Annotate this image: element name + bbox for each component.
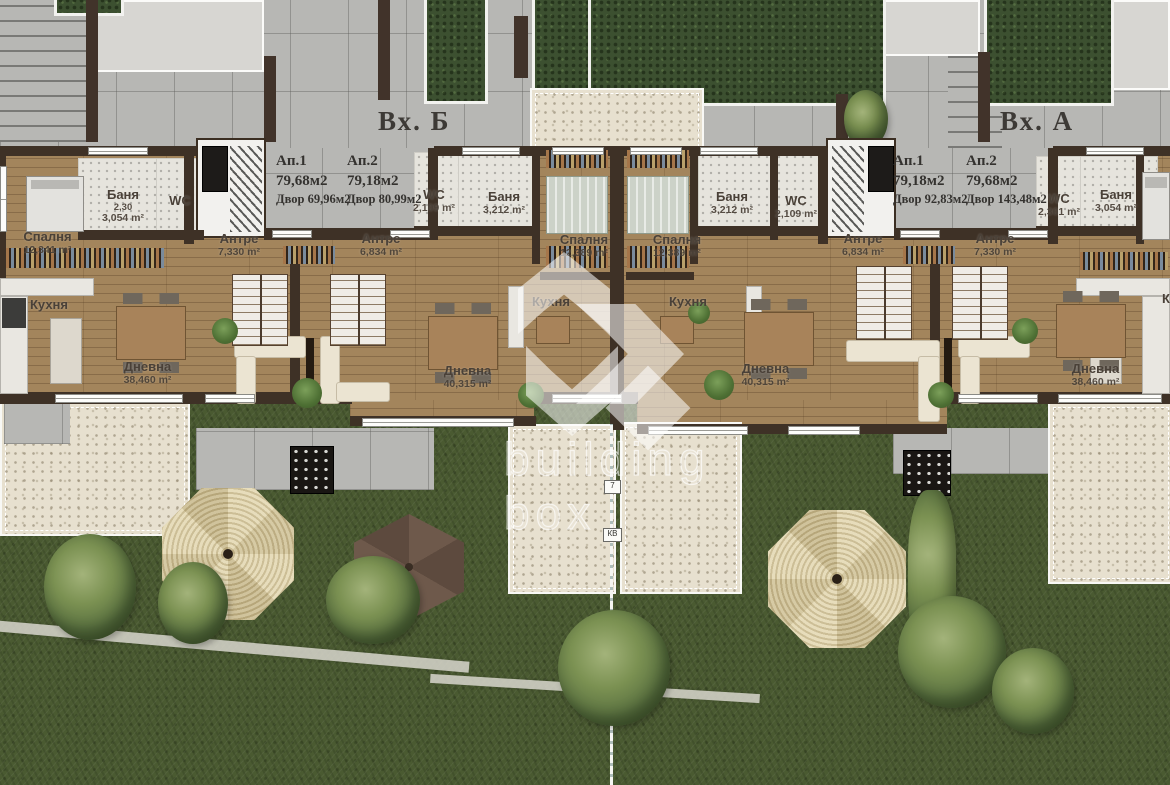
apartment-info-b1: Ап.1 79,68м2 Двор 69,96м2 xyxy=(276,152,350,207)
room-label-bedroom: Спалня12,389 m² xyxy=(638,233,716,259)
dining-table xyxy=(744,312,814,366)
room-label-bath: Баня3,054 m² xyxy=(1082,188,1150,214)
internal-staircase xyxy=(952,266,1008,340)
room-label-kitchen: Кухня xyxy=(1146,292,1170,307)
room-label-living: Дневна38,460 m² xyxy=(100,360,195,386)
gazebo xyxy=(768,510,906,648)
room-label-living: Дневна38,460 m² xyxy=(1048,362,1143,388)
window xyxy=(0,166,7,232)
entrance-b-label: Вх. Б xyxy=(378,106,451,137)
room-label-hall: Антре7,330 m² xyxy=(196,232,282,258)
plant xyxy=(518,382,544,408)
window xyxy=(958,394,1038,403)
terrace-tile-patch xyxy=(4,404,70,444)
exterior-stairs-left xyxy=(0,0,88,142)
bed xyxy=(546,176,608,234)
window xyxy=(1086,147,1144,155)
plant xyxy=(928,382,954,408)
stairwell-entrance-b xyxy=(196,138,266,238)
stairwell-entrance-a xyxy=(826,138,896,238)
hedge-planter-1 xyxy=(424,0,488,104)
room-label-wc: WC xyxy=(158,194,202,209)
tree xyxy=(898,596,1006,708)
bed xyxy=(627,176,689,234)
wall-column xyxy=(264,56,276,142)
plant xyxy=(212,318,238,344)
dining-table xyxy=(1056,304,1126,358)
terrace-gravel-center-left xyxy=(508,424,616,594)
wall xyxy=(1036,226,1156,236)
window xyxy=(788,426,860,435)
tree xyxy=(992,648,1074,734)
bbq-grill xyxy=(290,446,334,494)
entrance-a-label: Вх. А xyxy=(1000,106,1074,137)
chairs xyxy=(1056,291,1126,302)
chairs xyxy=(116,293,186,304)
room-label-bath: Баня3,212 m² xyxy=(698,190,766,216)
sofa xyxy=(336,382,390,402)
room-label-hall: Антре6,834 m² xyxy=(820,232,906,258)
internal-staircase xyxy=(232,274,288,346)
kitchen-island xyxy=(660,316,694,344)
room-label-kitchen: Кухня xyxy=(520,295,582,310)
room-label-wc: WC2,109 m² xyxy=(406,188,462,214)
window xyxy=(648,426,748,435)
room-label-hall: Антре6,834 m² xyxy=(338,232,424,258)
window xyxy=(700,147,758,155)
dining-table xyxy=(428,316,498,370)
entrance-a-door xyxy=(900,230,940,238)
wall-column xyxy=(978,52,990,142)
wall xyxy=(626,272,694,280)
room-label-living: Дневна40,315 m² xyxy=(420,364,515,390)
room-label-hall: Антре7,330 m² xyxy=(952,232,1038,258)
room-label-bath: Баня2,303,054 m² xyxy=(92,188,154,225)
site-plan: 7 КВ Вх. Б Вх. А Ап.1 79,68м2 Двор 69,96… xyxy=(0,0,1170,785)
window xyxy=(552,147,604,155)
elevator-icon xyxy=(868,146,894,192)
tree xyxy=(44,534,136,640)
room-label-bath: Баня3,212 m² xyxy=(470,190,538,216)
utility-line xyxy=(610,424,613,785)
tree xyxy=(326,556,420,644)
chairs xyxy=(744,299,814,310)
dining-table xyxy=(116,306,186,360)
window xyxy=(55,394,183,403)
terrace-door xyxy=(205,394,255,403)
room-label-living: Дневна40,315 m² xyxy=(718,362,813,388)
kitchen-counter xyxy=(1142,296,1170,394)
elevator-icon xyxy=(202,146,228,192)
window xyxy=(552,394,622,403)
internal-staircase xyxy=(330,274,386,346)
pole-marker-label: КВ xyxy=(603,528,622,542)
window xyxy=(1058,394,1162,403)
pole-marker-number: 7 xyxy=(604,480,621,494)
window xyxy=(362,418,514,427)
room-label-bedroom: Спалня12,389 m² xyxy=(545,233,623,259)
upper-terrace-gravel xyxy=(530,88,704,152)
room-label-wc: WC2,301 m² xyxy=(1030,192,1088,218)
bed xyxy=(26,176,84,232)
staircase-icon xyxy=(832,146,864,232)
terrace-gravel-right xyxy=(1048,402,1170,584)
upper-building-middle xyxy=(878,0,980,56)
kitchen-island xyxy=(50,318,82,384)
kitchen-island xyxy=(536,316,570,344)
apartment-info-a1: Ап.1 79,18м2 Двор 92,83м2 xyxy=(893,152,967,207)
bookshelf xyxy=(283,246,335,264)
plant xyxy=(1012,318,1038,344)
staircase-icon xyxy=(230,146,262,232)
wall xyxy=(610,148,624,430)
wall xyxy=(414,226,540,236)
plant xyxy=(292,378,322,408)
bookshelf xyxy=(903,246,955,264)
chairs xyxy=(428,303,498,314)
wall xyxy=(290,246,300,396)
wall xyxy=(698,226,824,236)
wall xyxy=(78,230,204,240)
hedge-planter-2 xyxy=(532,0,594,96)
tree xyxy=(158,562,228,644)
terrace-gravel-center-right xyxy=(620,422,742,594)
hedge-planter-3 xyxy=(984,0,1114,106)
bookshelf xyxy=(1080,252,1168,270)
room-label-wc: WC2,109 m² xyxy=(770,194,822,220)
kitchen-counter xyxy=(0,278,94,296)
window xyxy=(462,147,520,155)
window xyxy=(630,147,682,155)
tree xyxy=(558,610,670,726)
room-label-kitchen: Кухня xyxy=(14,298,84,313)
wall-column xyxy=(378,0,390,100)
room-label-bedroom: Спалня12,341 m² xyxy=(0,230,95,256)
wall-column xyxy=(514,16,528,78)
window xyxy=(88,147,148,155)
room-label-kitchen: Кухня xyxy=(648,295,728,310)
wall xyxy=(540,272,612,280)
wall-column xyxy=(86,0,98,142)
internal-staircase xyxy=(856,266,912,340)
